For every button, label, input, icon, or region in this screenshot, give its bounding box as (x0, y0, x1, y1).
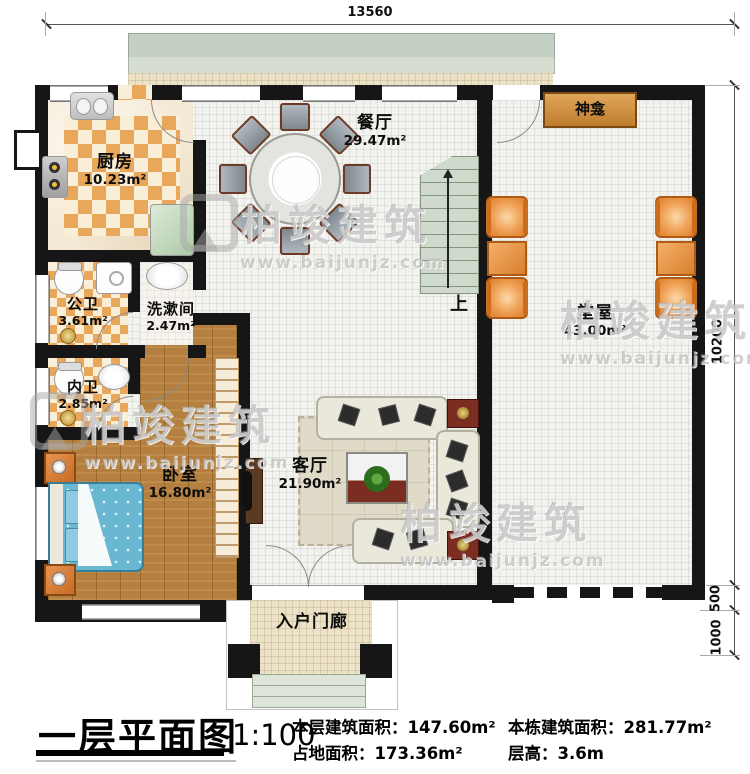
stat-label: 层高： (508, 744, 558, 763)
stat-land-area: 占地面积：173.36m² (292, 740, 463, 764)
stat-value: 147.60m² (408, 718, 496, 737)
sofa-pillow (372, 528, 395, 551)
nightstand (44, 452, 76, 484)
floor-plan-canvas: 上 神龛 (0, 0, 750, 774)
label-kitchen: 厨房10.23m² (65, 152, 165, 189)
stat-value: 281.77m² (624, 718, 712, 737)
dimension-line-top (45, 24, 735, 25)
bed (48, 482, 144, 572)
burner-2 (49, 179, 60, 190)
hall-armchair (486, 277, 528, 319)
shrine-label: 神龛 (575, 100, 605, 118)
sofa-pillow (446, 440, 469, 463)
label-public-bath: 公卫3.61m² (52, 295, 114, 328)
wall-hall-stub-left (492, 585, 514, 603)
extension-line (734, 12, 735, 36)
wall-bath-bottom-b (188, 345, 206, 358)
stat-label: 本层建筑面积： (292, 718, 408, 737)
dining-chair (280, 103, 310, 131)
porch-column (360, 644, 392, 678)
dimension-line-right (734, 85, 735, 656)
dining-chair (219, 164, 247, 194)
hall-armchair (655, 196, 697, 238)
washroom-sink (146, 262, 188, 290)
hall-side-table (656, 241, 696, 276)
hall-door-gap (493, 85, 540, 100)
watermark: 柏竣建筑 www.baijunjz.com (240, 192, 446, 273)
plan-title: 一层平面图 (38, 706, 238, 761)
dimension-top-width: 13560 (330, 5, 410, 20)
sofa-pillow (414, 404, 437, 427)
lamp (52, 460, 66, 474)
potted-plant (364, 466, 390, 492)
toilet-tank (58, 362, 82, 371)
porch-column (228, 644, 260, 678)
nightstand (44, 564, 76, 596)
stat-total-area: 本栋建筑面积：281.77m² (508, 714, 712, 738)
shrine-cabinet: 神龛 (543, 92, 637, 128)
watermark: 柏竣建筑 www.baijunjz.com (400, 490, 606, 571)
stat-label: 占地面积： (292, 744, 375, 763)
wall-living-bottom-right (350, 585, 492, 600)
coffee-table (346, 452, 408, 504)
kitchen-terrace-door-gap (118, 85, 152, 100)
washing-machine (96, 262, 132, 294)
stat-floor-area: 本层建筑面积：147.60m² (292, 714, 496, 738)
sink-basin-2 (93, 98, 108, 115)
washer-dial (109, 271, 124, 286)
stairs-up-arrow (447, 172, 449, 288)
kitchen-sink (70, 92, 114, 120)
public-bath-floor-drain (60, 328, 76, 344)
dimension-right-porch: 1000 (710, 615, 725, 661)
label-dining: 餐厅29.47m² (330, 113, 420, 150)
watermark: 柏竣建筑 www.baijunjz.com (84, 392, 290, 473)
lamp (52, 572, 66, 586)
dining-window-2 (303, 85, 355, 102)
flue-box (14, 130, 42, 170)
stat-floor-height: 层高：3.6m (508, 740, 604, 764)
bed-sheet-fold (78, 484, 112, 566)
sofa-top (316, 396, 448, 440)
living-side-table (447, 399, 479, 428)
sofa-pillow (378, 404, 400, 426)
wall-washroom-right (193, 262, 206, 290)
porch-steps (252, 674, 366, 708)
watermark-logo (30, 392, 88, 450)
stat-value: 173.36m² (375, 744, 463, 763)
stat-value: 3.6m (558, 744, 604, 763)
watermark-logo (180, 194, 238, 252)
terrace-roof-band-2 (128, 57, 555, 74)
wall-hall-dashed-opening (514, 587, 662, 598)
tv-screen (242, 471, 252, 511)
stat-label: 本栋建筑面积： (508, 718, 624, 737)
sink-basin-1 (76, 98, 91, 115)
terrace-roof-band (128, 33, 555, 59)
dining-chair (343, 164, 371, 194)
wall-hall-stub-right (662, 585, 692, 600)
hall-side-table (487, 241, 527, 276)
watermark: 柏竣建筑 www.baijunjz.com (560, 288, 750, 369)
dining-window-3 (382, 85, 457, 102)
extension-line (45, 12, 46, 36)
bed-pillow (65, 528, 80, 562)
dimension-right-step: 500 (709, 579, 724, 619)
public-bath-toilet (54, 263, 84, 295)
bed-headboard (50, 484, 64, 566)
stairs-up-label: 上 (450, 290, 468, 316)
extension-line (706, 85, 740, 86)
label-porch: 入户门廊 (276, 607, 348, 632)
bed-pillow (65, 490, 80, 524)
toilet-tank (58, 262, 82, 271)
bedroom-bottom-window (82, 604, 200, 620)
burner-1 (49, 162, 60, 173)
label-washroom: 洗漱间2.47m² (133, 300, 209, 333)
public-bath-window (35, 275, 50, 343)
sofa-pillow (338, 404, 361, 427)
hall-armchair (486, 196, 528, 238)
